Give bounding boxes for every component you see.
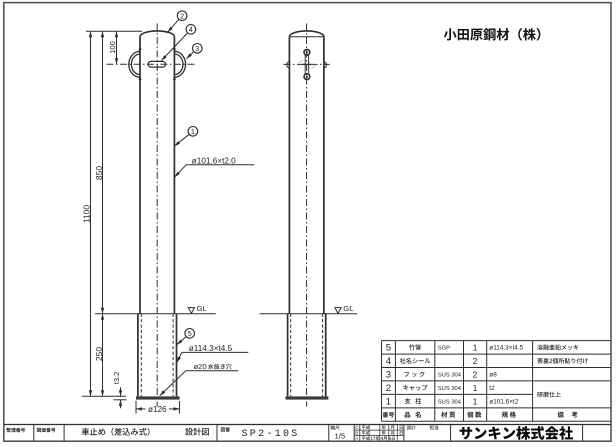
svg-text:100: 100 — [108, 41, 117, 54]
svg-text:5: 5 — [386, 343, 391, 354]
svg-text:SUS 304: SUS 304 — [438, 386, 462, 392]
svg-text:3: 3 — [386, 370, 391, 381]
svg-text:t3.2: t3.2 — [112, 372, 121, 385]
svg-text:ø126: ø126 — [148, 405, 167, 414]
svg-text:2: 2 — [473, 356, 478, 366]
svg-text:t2: t2 — [489, 385, 495, 392]
svg-text:3: 3 — [195, 44, 199, 53]
svg-text:ø101.6×t2: ø101.6×t2 — [489, 398, 518, 405]
svg-text:GL: GL — [343, 304, 353, 313]
svg-text:SGP: SGP — [438, 346, 450, 352]
svg-text:1: 1 — [473, 396, 478, 406]
svg-text:1: 1 — [473, 343, 478, 353]
svg-text:4: 4 — [386, 356, 391, 367]
svg-text:2: 2 — [180, 11, 184, 20]
svg-text:250: 250 — [94, 347, 104, 361]
svg-text:ø114.3×t4.5: ø114.3×t4.5 — [189, 344, 233, 353]
svg-text:SP2-10S: SP2-10S — [242, 429, 300, 440]
svg-text:1100: 1100 — [81, 205, 91, 224]
svg-text:ø8: ø8 — [489, 372, 497, 379]
svg-text:1: 1 — [386, 397, 391, 408]
svg-text:B: B — [355, 431, 358, 436]
svg-text:GL: GL — [197, 304, 207, 313]
svg-text:2: 2 — [386, 383, 391, 394]
svg-text:ø114.3×t4.5: ø114.3×t4.5 — [489, 345, 523, 352]
svg-text:ø101.6×t2.0: ø101.6×t2.0 — [192, 156, 236, 165]
svg-text:ø20: ø20 — [194, 362, 207, 371]
svg-text:5: 5 — [188, 329, 192, 338]
svg-text:850: 850 — [94, 166, 104, 180]
svg-text:1/5: 1/5 — [335, 431, 346, 440]
svg-text:SUS 304: SUS 304 — [438, 372, 462, 378]
svg-text:1: 1 — [191, 127, 195, 136]
svg-text:SUS 304: SUS 304 — [438, 399, 462, 405]
svg-text:4: 4 — [189, 25, 193, 34]
svg-text:1: 1 — [473, 383, 478, 393]
svg-text:2: 2 — [473, 369, 478, 379]
